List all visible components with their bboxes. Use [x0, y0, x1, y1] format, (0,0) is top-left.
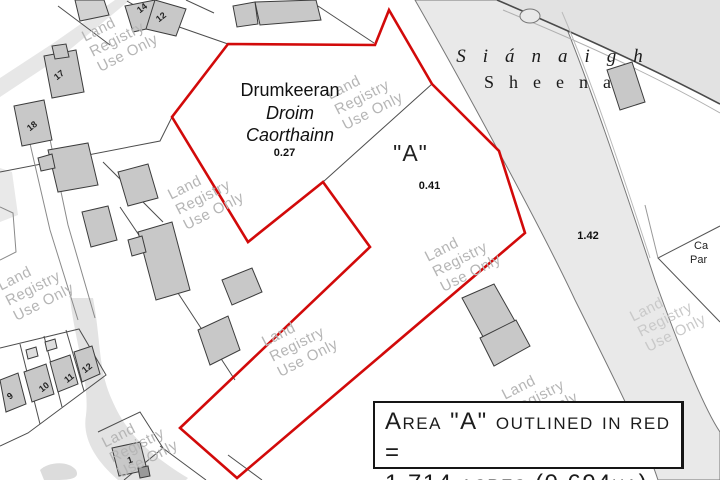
- land-registry-map: LandRegistryUse Only LandRegistryUse Onl…: [0, 0, 720, 480]
- annotation-line-1: Area "A" outlined in red =: [385, 406, 681, 468]
- annotation-line-2: 1.714 acres (0.694ha): [385, 468, 681, 480]
- area-annotation-box: Area "A" outlined in red = 1.714 acres (…: [373, 401, 684, 469]
